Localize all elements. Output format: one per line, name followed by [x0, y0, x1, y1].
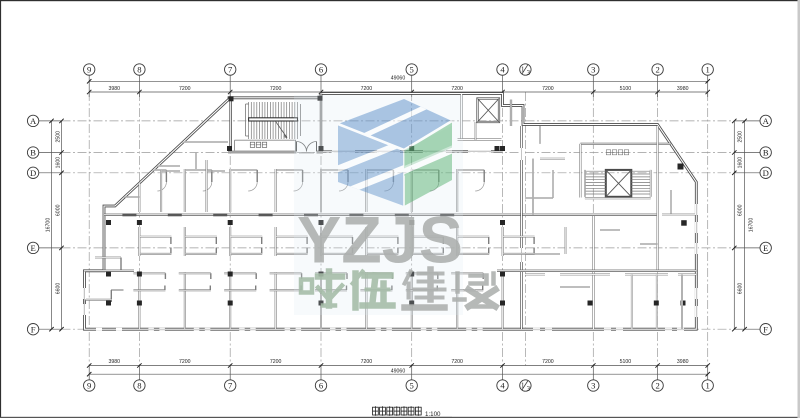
- svg-text:7200: 7200: [179, 86, 191, 92]
- svg-text:1600: 1600: [56, 157, 62, 169]
- svg-text:8: 8: [137, 381, 141, 391]
- svg-text:49060: 49060: [391, 76, 406, 82]
- svg-text:5: 5: [410, 381, 414, 391]
- svg-text:1: 1: [706, 65, 710, 75]
- svg-text:6: 6: [319, 381, 324, 391]
- svg-text:A: A: [763, 116, 770, 126]
- svg-text:3: 3: [527, 70, 531, 77]
- svg-text:7200: 7200: [451, 86, 463, 92]
- svg-text:5: 5: [410, 65, 414, 75]
- svg-text:6: 6: [319, 65, 324, 75]
- svg-text:2500: 2500: [56, 131, 62, 143]
- svg-text:F: F: [31, 324, 36, 334]
- svg-text:7200: 7200: [542, 86, 554, 92]
- svg-text:3: 3: [591, 65, 595, 75]
- svg-text:YZJS: YZJS: [297, 203, 463, 277]
- svg-text:5100: 5100: [620, 86, 632, 92]
- svg-text:2: 2: [655, 381, 659, 391]
- svg-text:2: 2: [655, 65, 659, 75]
- svg-text:D: D: [763, 168, 769, 178]
- svg-text:4: 4: [500, 381, 505, 391]
- svg-text:6600: 6600: [56, 283, 62, 295]
- svg-text:7200: 7200: [270, 86, 282, 92]
- svg-text:1: 1: [521, 382, 524, 389]
- svg-text:7200: 7200: [542, 359, 554, 365]
- svg-text:B: B: [763, 148, 769, 158]
- svg-text:E: E: [30, 243, 35, 253]
- svg-text:1: 1: [706, 381, 710, 391]
- svg-text:6600: 6600: [738, 283, 744, 295]
- svg-text:16700: 16700: [749, 218, 755, 233]
- svg-text:7200: 7200: [361, 86, 373, 92]
- svg-text:7: 7: [228, 381, 233, 391]
- svg-text:7200: 7200: [361, 359, 373, 365]
- svg-text:3: 3: [527, 386, 531, 393]
- svg-text:3980: 3980: [109, 359, 121, 365]
- svg-text:3980: 3980: [677, 359, 689, 365]
- svg-text:5100: 5100: [620, 359, 632, 365]
- svg-text:9: 9: [87, 65, 91, 75]
- svg-text:3: 3: [591, 381, 595, 391]
- svg-text:3980: 3980: [109, 86, 121, 92]
- svg-text:7200: 7200: [270, 359, 282, 365]
- svg-text:6000: 6000: [56, 204, 62, 216]
- svg-text:E: E: [763, 243, 768, 253]
- svg-text:B: B: [30, 148, 36, 158]
- svg-text:F: F: [763, 324, 768, 334]
- svg-text:D: D: [30, 168, 36, 178]
- svg-text:49060: 49060: [391, 369, 406, 375]
- svg-text:7: 7: [228, 65, 233, 75]
- svg-text:3980: 3980: [677, 86, 689, 92]
- svg-text:16700: 16700: [46, 218, 52, 233]
- svg-text:9: 9: [87, 381, 91, 391]
- svg-text:2500: 2500: [738, 131, 744, 143]
- svg-text:1600: 1600: [738, 157, 744, 169]
- svg-text:7200: 7200: [451, 359, 463, 365]
- svg-text:8: 8: [137, 65, 141, 75]
- svg-text:4: 4: [500, 65, 505, 75]
- svg-text:7200: 7200: [179, 359, 191, 365]
- svg-text:1: 1: [521, 66, 524, 73]
- svg-text:6000: 6000: [738, 204, 744, 216]
- svg-text:A: A: [30, 116, 37, 126]
